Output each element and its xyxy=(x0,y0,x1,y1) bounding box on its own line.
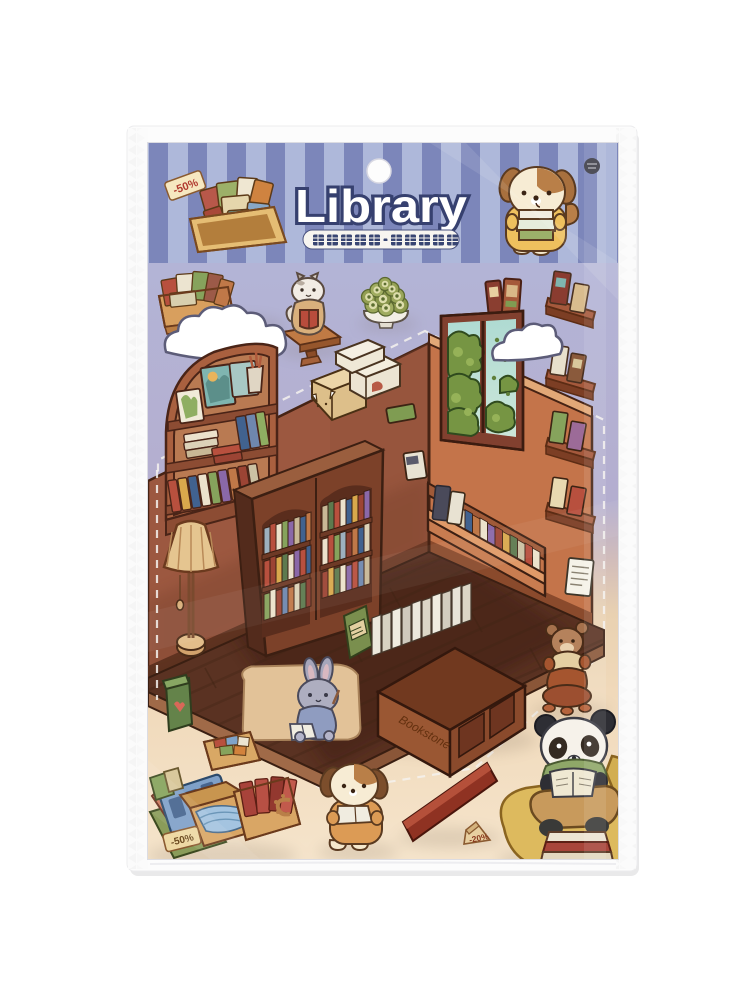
svg-text:Library: Library xyxy=(295,180,467,232)
